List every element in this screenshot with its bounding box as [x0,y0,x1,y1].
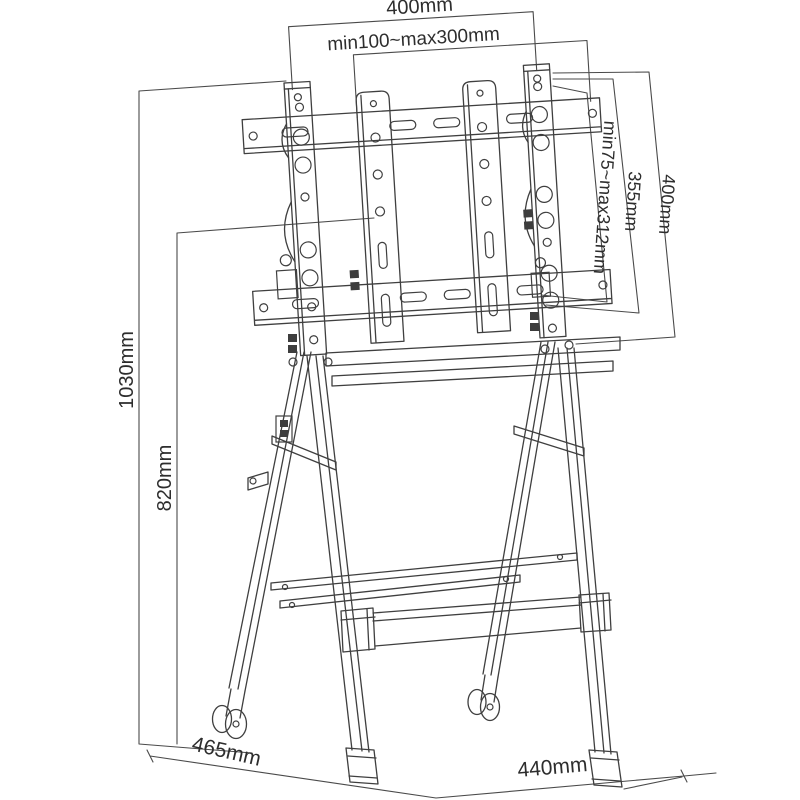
top-pivot-bar [326,337,620,366]
dim-label-base-width: 440mm [517,753,589,782]
rail-screw [249,132,257,140]
rear-right-leg [483,342,555,677]
hinge-nut [280,420,288,427]
brace-lock-lever [248,472,268,490]
rear-left-caster [213,689,247,739]
hinge-nut [280,430,288,437]
a-frame-base [213,312,623,787]
rail-screw [259,303,267,311]
pivot-nut [530,312,539,320]
left-upright-column [265,81,327,356]
second-pivot-bar [332,361,613,386]
right-upright-column [516,64,566,339]
dim-label-column-length: 400mm [655,174,679,235]
dim-label-bracket-height: 355mm [621,171,645,232]
diagram-canvas: 1030mm 820mm min75~max312mm 355mm 400mm … [0,0,800,800]
right-vesa-bracket [462,80,510,333]
dim-label-mount-height-range: min75~max312mm [590,120,621,275]
front-right-leg [558,348,611,754]
clamp-nut [350,270,359,279]
bottom-crossbar [373,597,581,646]
overall-height-extension-lines [139,81,286,753]
right-side-brace [514,426,584,456]
upper-stretcher-rail [271,553,577,590]
front-left-foot [346,748,378,784]
tilt-knob [535,257,546,268]
pivot-nut [288,334,297,342]
tv-mount-assembly: 400mm min100~max300mm [235,0,614,358]
left-vesa-bracket [356,91,404,344]
lower-stretcher-rail [280,575,520,608]
clamp-nut [350,282,359,291]
front-left-leg [307,356,369,752]
dim-label-frame-height: 820mm [154,445,176,512]
clamp-nut [523,209,532,218]
frame-height-extension-lines [177,218,374,744]
pivot-screw [565,341,573,349]
dim-label-base-depth: 465mm [190,733,263,771]
lever-screw [250,478,256,484]
bottom-dimension-lines: 465mm 440mm [147,733,716,798]
rear-right-caster [468,675,500,721]
clamp-nut [524,221,533,230]
tilt-bracket [276,270,298,299]
pivot-nut [288,345,297,353]
dim-label-overall-height: 1030mm [116,331,138,409]
pivot-screw [324,358,332,366]
pivot-nut [530,323,539,331]
tv-stand-dimension-diagram: 1030mm 820mm min75~max312mm 355mm 400mm … [0,0,800,800]
tilt-knob [280,254,292,266]
rear-left-leg [229,352,311,691]
